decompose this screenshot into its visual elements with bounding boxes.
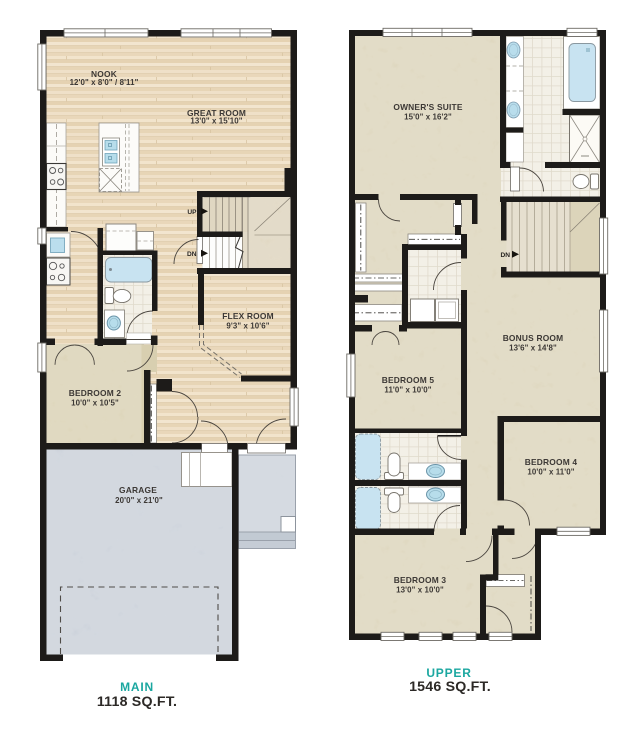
- svg-text:BEDROOM 2: BEDROOM 2: [69, 388, 122, 398]
- svg-text:OWNER'S SUITE: OWNER'S SUITE: [393, 102, 462, 112]
- svg-text:UPPER: UPPER: [426, 666, 471, 680]
- svg-text:13'0" x 10'0": 13'0" x 10'0": [396, 586, 444, 595]
- svg-text:10'0" x 11'0": 10'0" x 11'0": [527, 468, 574, 477]
- svg-text:BEDROOM 5: BEDROOM 5: [382, 375, 435, 385]
- svg-text:11'0" x 10'0": 11'0" x 10'0": [384, 386, 431, 395]
- svg-text:13'0" x 15'10": 13'0" x 15'10": [190, 117, 242, 126]
- svg-text:12'0" x 8'0" / 8'11": 12'0" x 8'0" / 8'11": [70, 78, 139, 87]
- svg-text:10'0" x 10'5": 10'0" x 10'5": [71, 399, 119, 408]
- svg-text:BONUS ROOM: BONUS ROOM: [503, 333, 564, 343]
- svg-text:DN: DN: [500, 252, 510, 259]
- svg-text:BEDROOM 4: BEDROOM 4: [525, 457, 578, 467]
- svg-text:13'6" x 14'8": 13'6" x 14'8": [509, 344, 557, 353]
- svg-text:DN: DN: [187, 251, 197, 258]
- svg-text:MAIN: MAIN: [120, 680, 154, 694]
- svg-text:1546 SQ.FT.: 1546 SQ.FT.: [409, 679, 491, 695]
- svg-text:UP: UP: [187, 209, 197, 216]
- svg-text:1118 SQ.FT.: 1118 SQ.FT.: [97, 694, 177, 710]
- svg-text:20'0" x 21'0": 20'0" x 21'0": [115, 496, 163, 505]
- svg-text:GARAGE: GARAGE: [119, 485, 157, 495]
- svg-text:9'3" x 10'6": 9'3" x 10'6": [226, 322, 269, 331]
- svg-text:BEDROOM 3: BEDROOM 3: [394, 575, 447, 585]
- svg-text:15'0" x 16'2": 15'0" x 16'2": [404, 113, 452, 122]
- svg-text:FLEX ROOM: FLEX ROOM: [222, 311, 274, 321]
